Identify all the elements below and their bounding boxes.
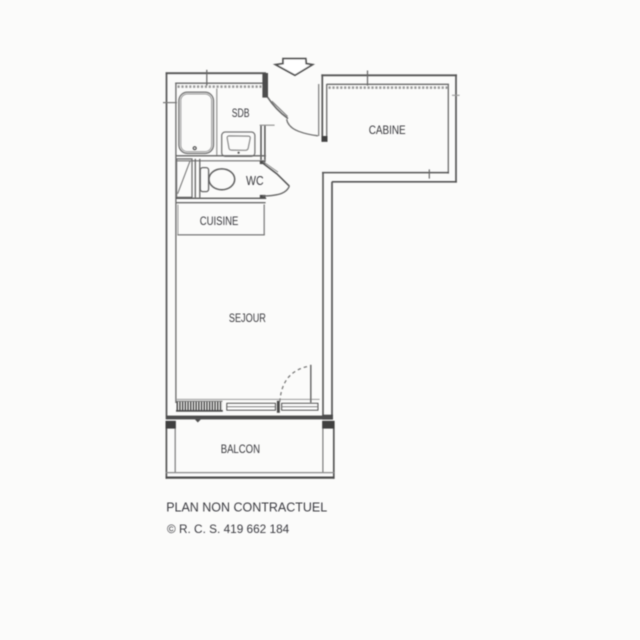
svg-text:SEJOUR: SEJOUR	[229, 311, 266, 325]
svg-text:© R. C. S. 419 662 184: © R. C. S. 419 662 184	[167, 522, 289, 536]
svg-text:CABINE: CABINE	[369, 123, 406, 137]
svg-text:SDB: SDB	[232, 106, 250, 120]
svg-text:PLAN NON CONTRACTUEL: PLAN NON CONTRACTUEL	[166, 499, 327, 514]
svg-text:BALCON: BALCON	[221, 442, 260, 456]
svg-text:CUISINE: CUISINE	[200, 214, 239, 228]
svg-text:WC: WC	[246, 173, 264, 188]
